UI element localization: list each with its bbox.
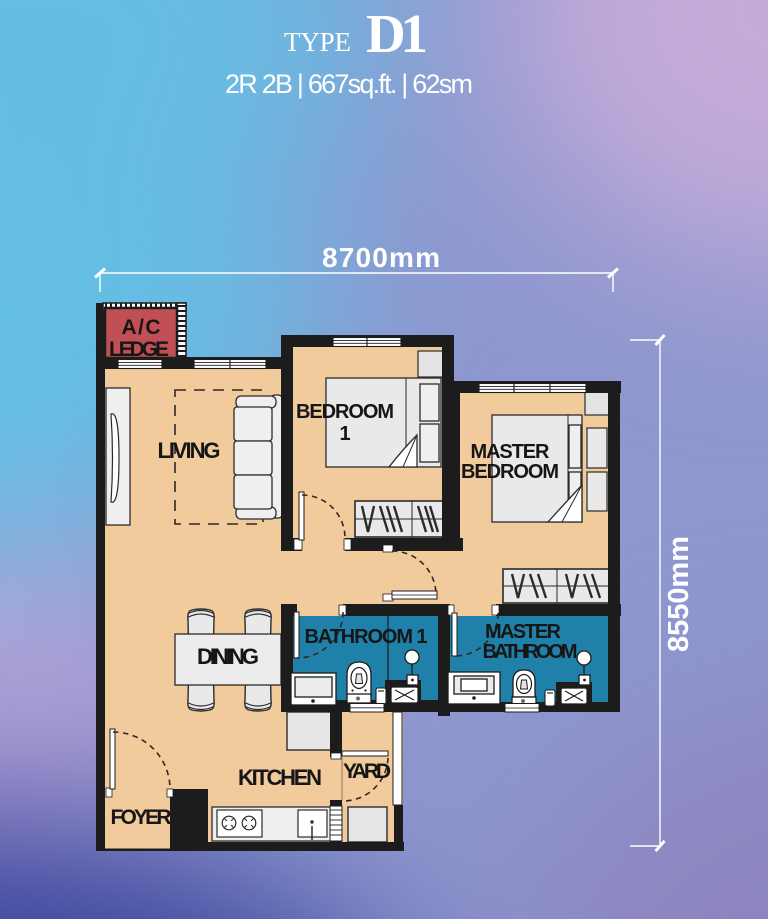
svg-text:LEDGE: LEDGE — [109, 338, 169, 361]
svg-text:DINING: DINING — [197, 644, 259, 669]
svg-text:FOYER: FOYER — [111, 806, 172, 829]
svg-text:MASTER: MASTER — [471, 441, 551, 463]
svg-text:BATHROOM 1: BATHROOM 1 — [305, 626, 428, 648]
svg-text:KITCHEN: KITCHEN — [238, 765, 322, 790]
svg-text:A/C: A/C — [122, 316, 161, 339]
svg-text:BATHROOM: BATHROOM — [483, 641, 578, 663]
svg-text:2R 2B | 667sq.ft. | 62sm: 2R 2B | 667sq.ft. | 62sm — [225, 69, 473, 99]
svg-text:MASTER: MASTER — [485, 621, 562, 643]
svg-text:YARD: YARD — [343, 760, 391, 783]
svg-text:LIVING: LIVING — [158, 438, 221, 463]
svg-text:8700mm: 8700mm — [322, 242, 440, 273]
svg-text:D1: D1 — [366, 3, 428, 64]
svg-text:TYPE: TYPE — [284, 27, 352, 57]
svg-text:1: 1 — [339, 423, 350, 445]
svg-text:8550mm: 8550mm — [663, 536, 695, 652]
svg-text:BEDROOM: BEDROOM — [461, 461, 559, 483]
svg-text:BEDROOM: BEDROOM — [296, 401, 394, 423]
